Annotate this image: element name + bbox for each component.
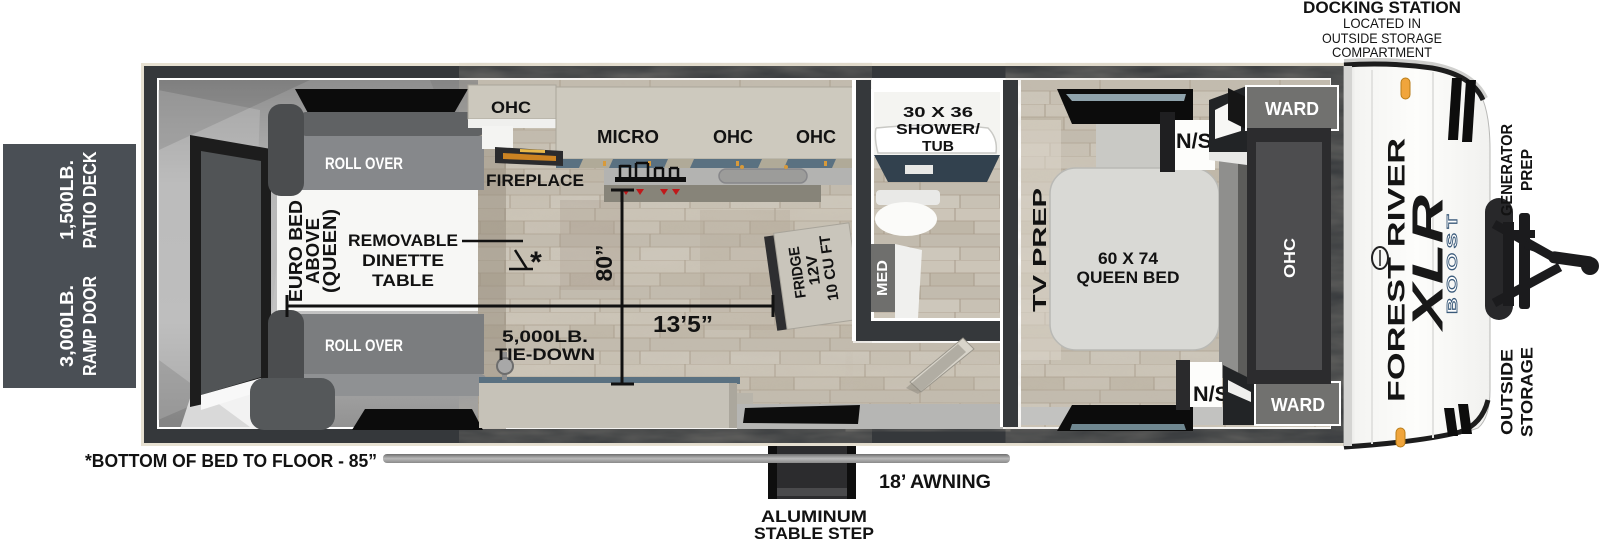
svg-text:WARD: WARD xyxy=(1265,99,1319,119)
svg-text:STORAGE: STORAGE xyxy=(1517,347,1536,437)
svg-text:13’5”: 13’5” xyxy=(653,311,713,337)
svg-text:COMPARTMENT: COMPARTMENT xyxy=(1332,44,1432,60)
svg-text:(QUEEN): (QUEEN) xyxy=(320,209,340,293)
svg-text:REMOVABLE: REMOVABLE xyxy=(348,231,458,250)
svg-text:FIREPLACE: FIREPLACE xyxy=(486,171,584,190)
svg-text:DINETTE: DINETTE xyxy=(362,251,444,270)
svg-text:60 X 74: 60 X 74 xyxy=(1098,249,1159,268)
svg-text:*: * xyxy=(530,246,542,279)
svg-text:OHC: OHC xyxy=(713,127,753,147)
svg-text:STABLE STEP: STABLE STEP xyxy=(754,524,874,540)
svg-text:GENERATOR: GENERATOR xyxy=(1499,124,1516,216)
svg-text:WARD: WARD xyxy=(1271,395,1325,415)
svg-text:MED: MED xyxy=(874,260,891,296)
svg-text:RAMP DOOR: RAMP DOOR xyxy=(80,276,100,376)
svg-text:OHC: OHC xyxy=(796,127,836,147)
svg-text:PREP: PREP xyxy=(1519,149,1536,191)
svg-text:TUB: TUB xyxy=(922,138,954,155)
svg-text:MICRO: MICRO xyxy=(597,127,659,147)
svg-text:ROLL OVER: ROLL OVER xyxy=(325,336,403,355)
svg-text:30 X 36: 30 X 36 xyxy=(903,104,973,121)
svg-text:OHC: OHC xyxy=(1282,238,1299,278)
svg-text:*BOTTOM OF BED TO FLOOR - 85”: *BOTTOM OF BED TO FLOOR - 85” xyxy=(85,451,377,471)
svg-text:TV PREP: TV PREP xyxy=(1030,188,1050,312)
svg-text:OUTSIDE: OUTSIDE xyxy=(1497,349,1516,435)
svg-text:ROLL OVER: ROLL OVER xyxy=(325,154,403,173)
svg-text:TIE-DOWN: TIE-DOWN xyxy=(495,345,595,364)
svg-text:QUEEN BED: QUEEN BED xyxy=(1077,268,1180,287)
svg-text:SHOWER/: SHOWER/ xyxy=(896,121,981,138)
svg-text:5,000LB.: 5,000LB. xyxy=(502,327,588,346)
svg-text:80”: 80” xyxy=(591,244,617,281)
svg-text:1,500LB.: 1,500LB. xyxy=(57,160,77,240)
svg-text:LOCATED IN: LOCATED IN xyxy=(1343,15,1421,31)
svg-text:N/S: N/S xyxy=(1176,130,1212,153)
svg-text:TABLE: TABLE xyxy=(372,271,434,290)
svg-text:OHC: OHC xyxy=(491,98,531,117)
svg-text:BOOST: BOOST xyxy=(1444,210,1461,314)
svg-text:18’ AWNING: 18’ AWNING xyxy=(879,472,991,493)
svg-text:PATIO DECK: PATIO DECK xyxy=(80,152,100,249)
svg-text:3,000LB.: 3,000LB. xyxy=(57,285,77,367)
